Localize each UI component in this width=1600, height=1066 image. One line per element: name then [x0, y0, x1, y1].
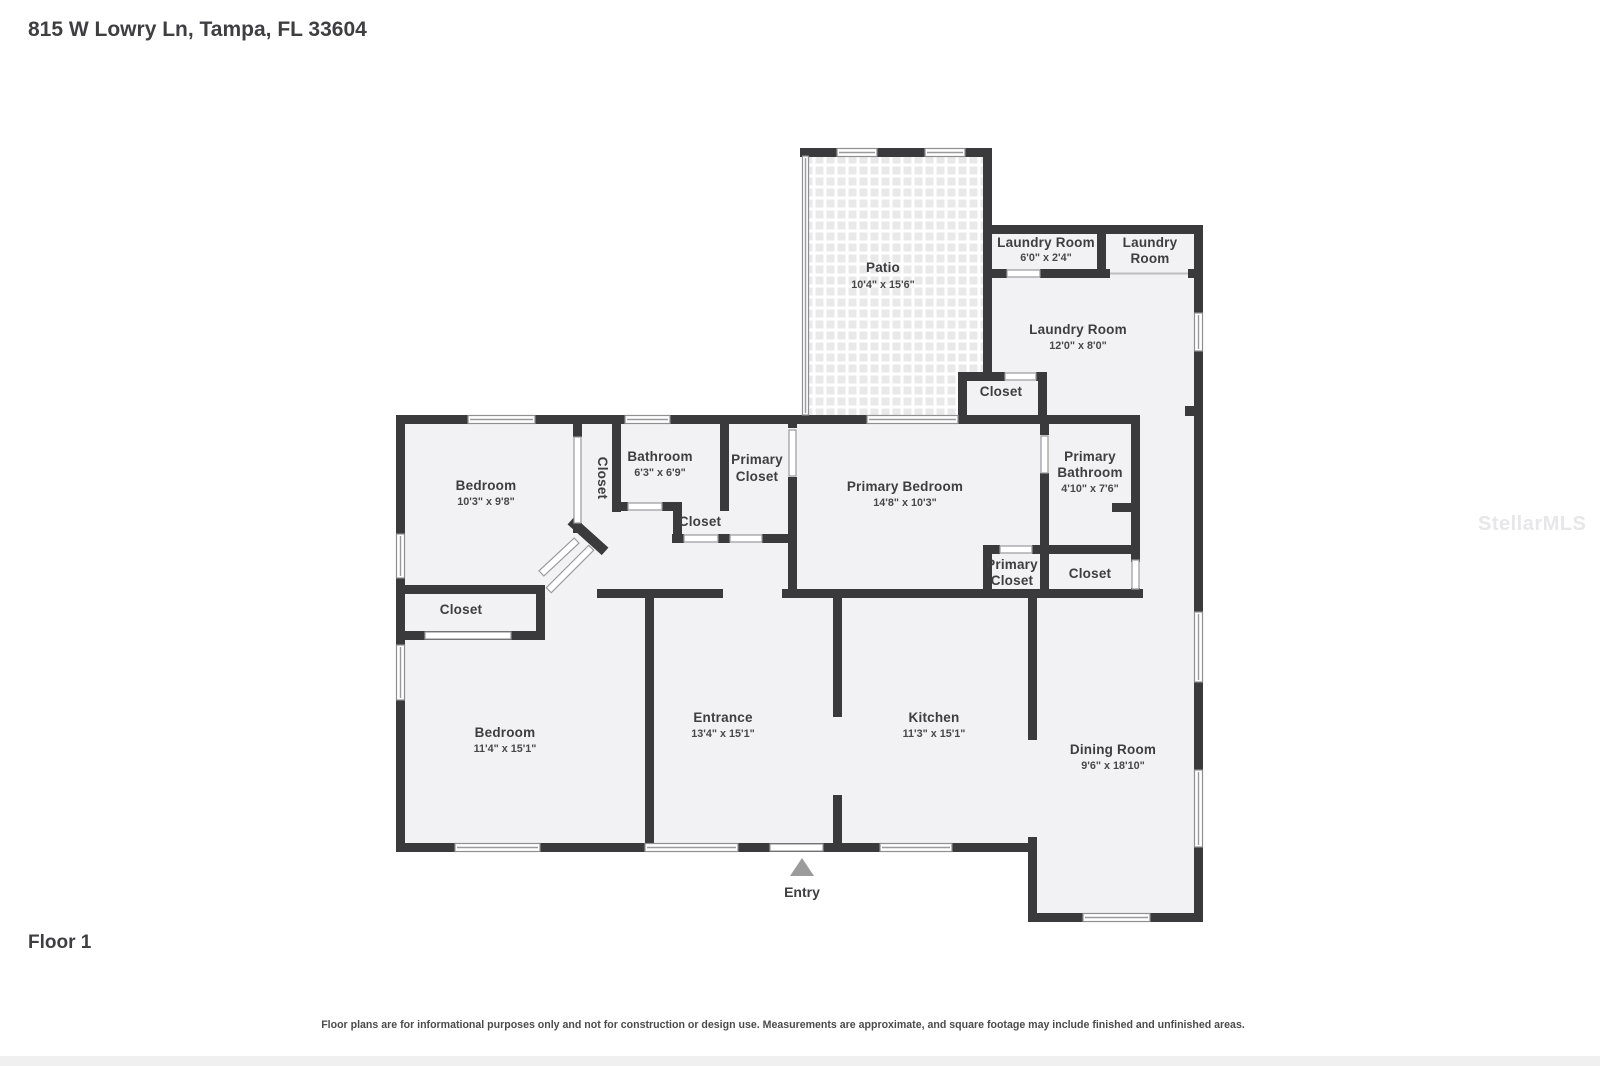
room-label-closet-bedroom2: Closet	[440, 602, 483, 617]
room-label-patio: Patio	[866, 260, 900, 275]
room-label-laundry-top-right-2: Room	[1130, 251, 1169, 266]
entry-label: Entry	[784, 884, 820, 900]
room-size-kitchen: 11'3" x 15'1"	[903, 728, 966, 740]
room-label-primary-bedroom: Primary Bedroom	[847, 479, 963, 494]
room-label-laundry-closet: Closet	[980, 384, 1023, 399]
room-size-entrance: 13'4" x 15'1"	[691, 728, 754, 740]
room-label-primary-closet-upper-2: Closet	[736, 469, 779, 484]
room-label-laundry-main: Laundry Room	[1029, 322, 1127, 337]
room-size-patio: 10'4" x 15'6"	[851, 279, 914, 291]
room-label-dining: Dining Room	[1070, 742, 1156, 757]
floor-plan-page: Patio 10'4" x 15'6" Laundry Room 6'0" x …	[0, 0, 1600, 1066]
disclaimer-text: Floor plans are for informational purpos…	[321, 1019, 1245, 1031]
room-size-primary-bedroom: 14'8" x 10'3"	[873, 497, 936, 509]
room-size-bathroom: 6'3" x 6'9"	[634, 467, 685, 479]
room-label-closet-hall: Closet	[679, 514, 722, 529]
room-label-entrance: Entrance	[693, 710, 753, 725]
room-label-closet-by-primary: Closet	[1069, 566, 1112, 581]
floor-label: Floor 1	[28, 932, 92, 953]
room-size-primary-bathroom: 4'10" x 7'6"	[1061, 483, 1118, 495]
room-size-laundry-main: 12'0" x 8'0"	[1049, 340, 1106, 352]
entry-arrow-icon	[790, 858, 814, 876]
room-label-laundry-top-right-1: Laundry	[1123, 235, 1178, 250]
page-bottom-strip	[0, 1056, 1600, 1066]
room-label-closet-vertical: Closet	[595, 457, 610, 500]
room-label-bathroom: Bathroom	[627, 449, 692, 464]
room-label-laundry-small: Laundry Room	[997, 235, 1095, 250]
room-label-primary-bathroom-2: Bathroom	[1057, 465, 1122, 480]
room-size-laundry-small: 6'0" x 2'4"	[1020, 252, 1071, 264]
room-label-primary-closet-upper-1: Primary	[731, 452, 783, 467]
room-label-primary-closet-small-2: Closet	[991, 573, 1034, 588]
room-label-bedroom-lower: Bedroom	[475, 725, 536, 740]
room-label-primary-closet-small-1: Primary	[986, 557, 1038, 572]
room-label-primary-bathroom-1: Primary	[1064, 449, 1116, 464]
room-size-dining: 9'6" x 18'10"	[1081, 760, 1144, 772]
floor-plan-canvas: Patio 10'4" x 15'6" Laundry Room 6'0" x …	[0, 0, 1600, 1066]
room-label-bedroom-upper: Bedroom	[456, 478, 517, 493]
room-label-kitchen: Kitchen	[909, 710, 960, 725]
watermark-logo: StellarMLS	[1478, 513, 1586, 535]
room-size-bedroom-lower: 11'4" x 15'1"	[474, 743, 537, 755]
room-size-bedroom-upper: 10'3" x 9'8"	[457, 496, 514, 508]
address-title: 815 W Lowry Ln, Tampa, FL 33604	[28, 18, 367, 41]
